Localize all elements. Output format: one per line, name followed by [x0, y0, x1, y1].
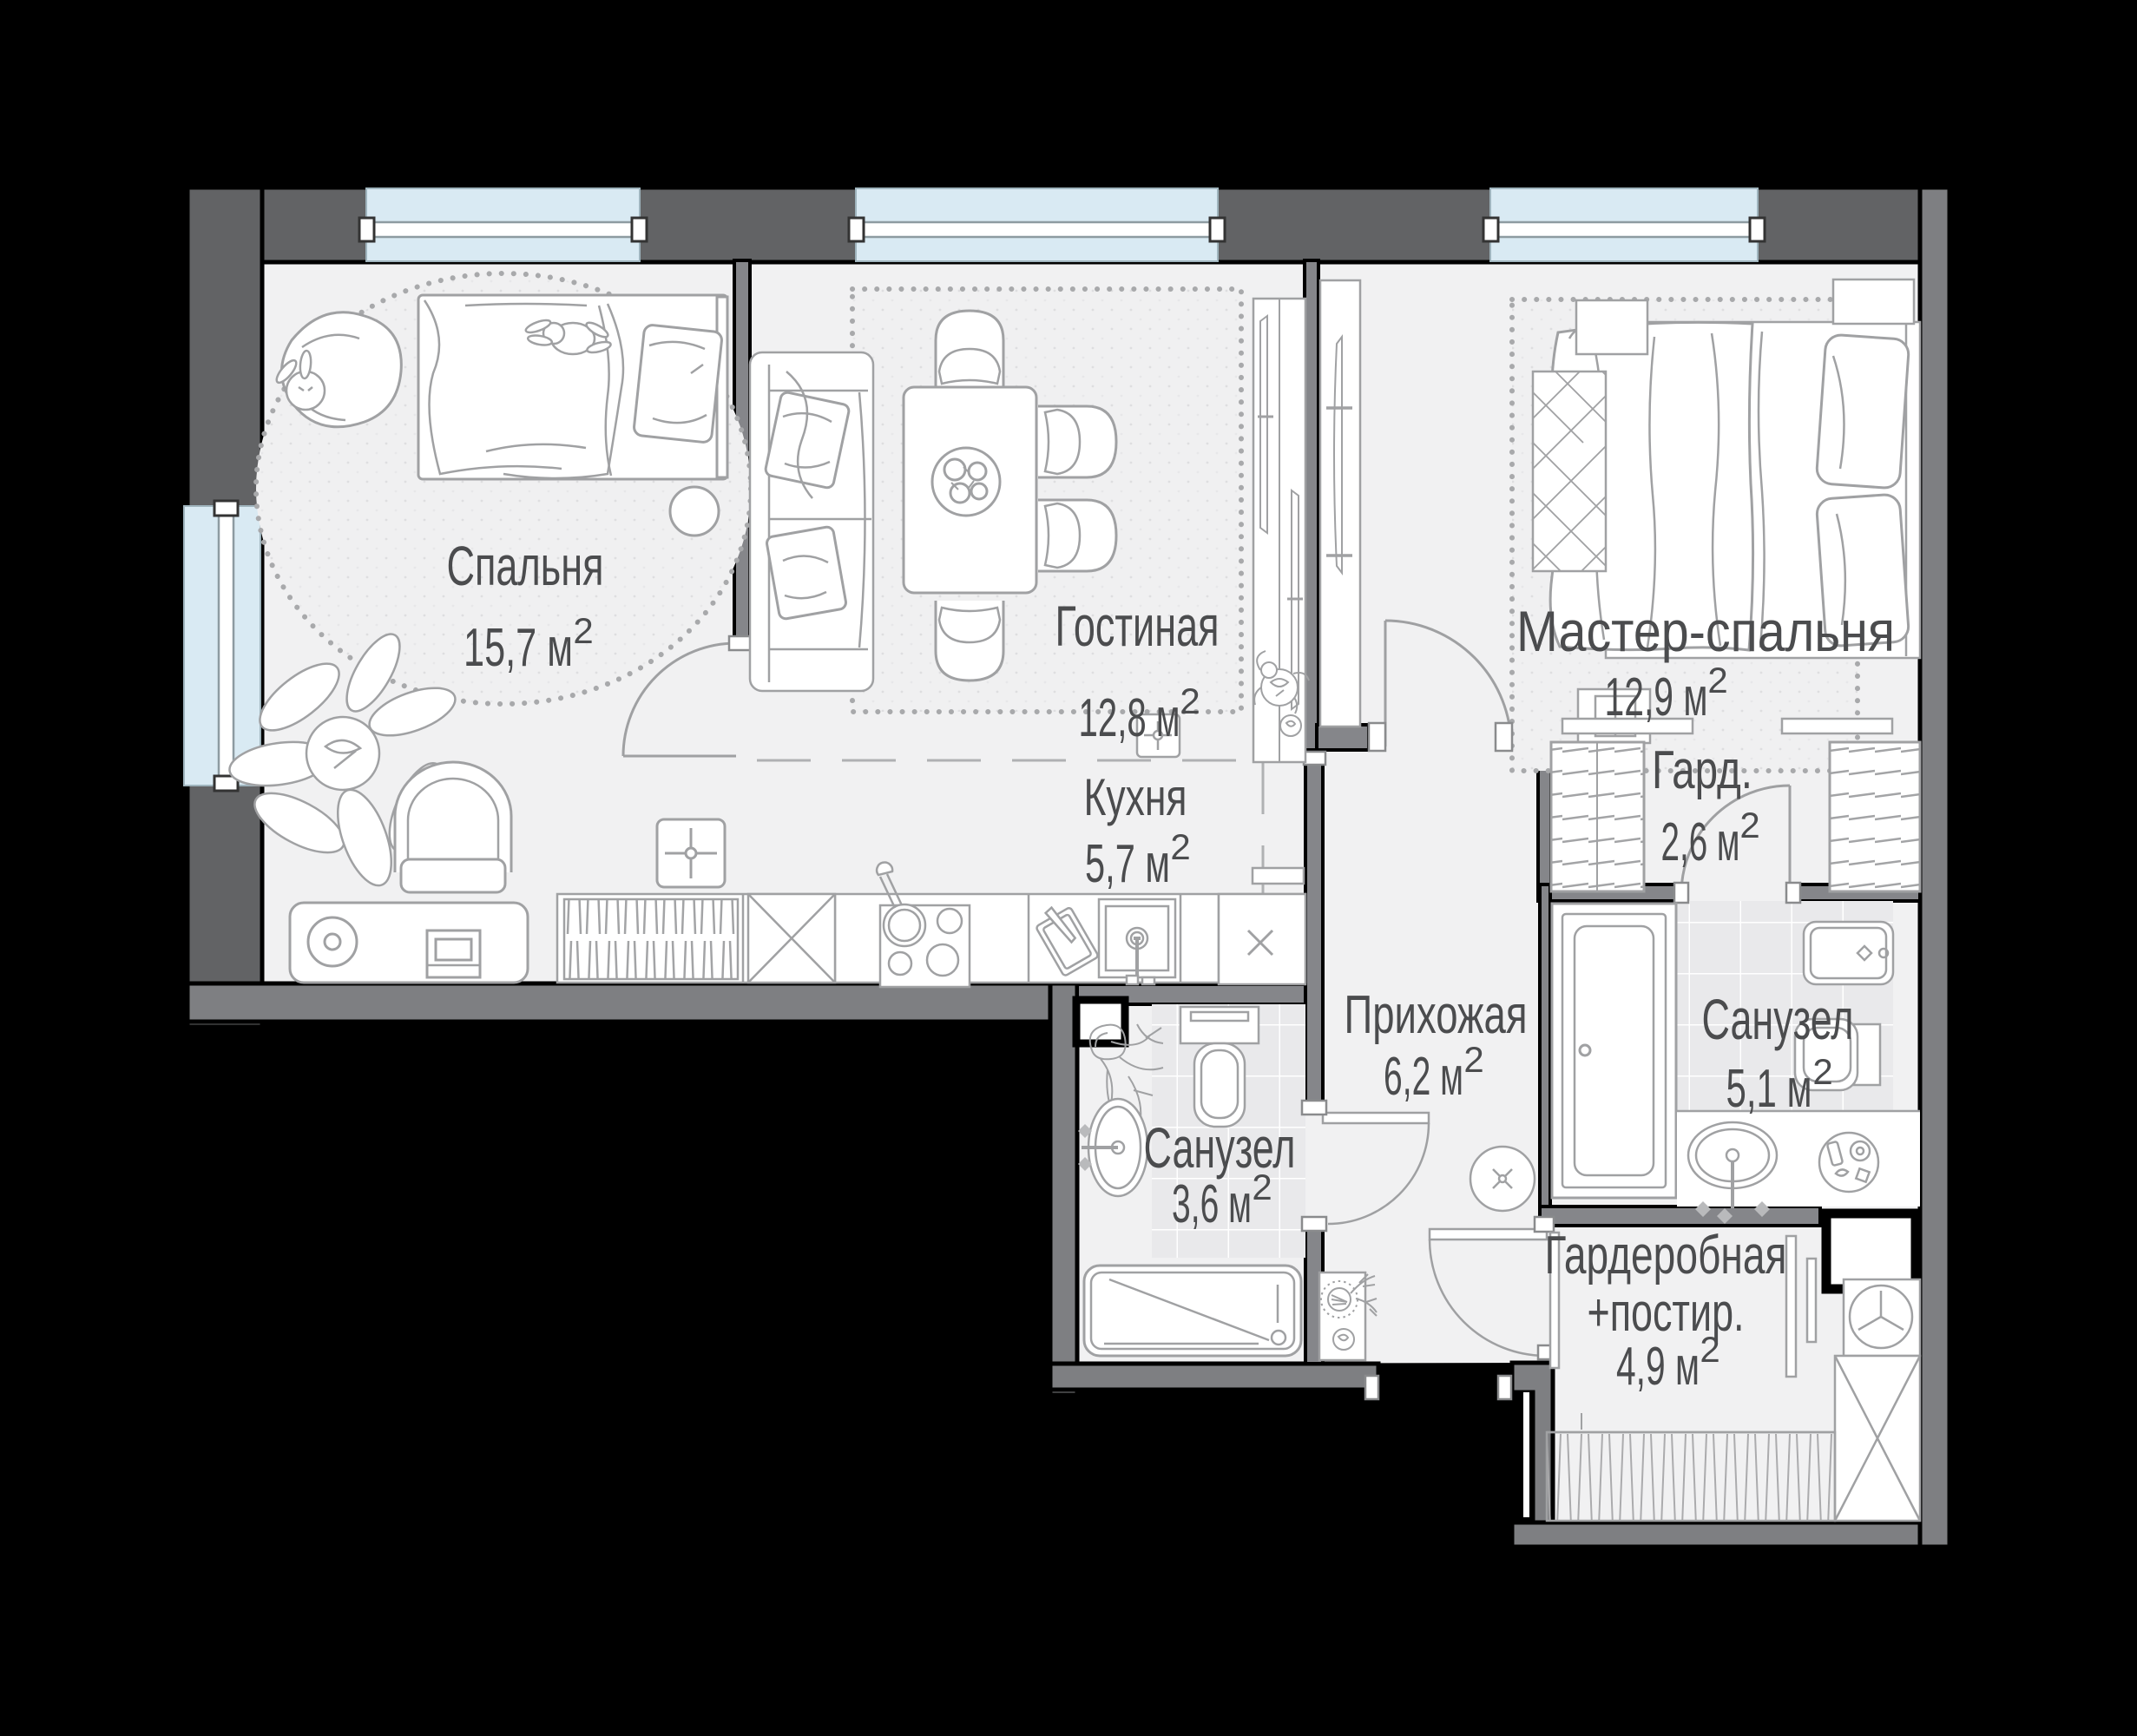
- svg-text:2: 2: [1707, 660, 1727, 700]
- svg-text:Санузел: Санузел: [1144, 1115, 1296, 1180]
- svg-text:12,9 м: 12,9 м: [1605, 667, 1708, 727]
- svg-text:Гард.: Гард.: [1652, 740, 1752, 800]
- svg-text:2: 2: [1700, 1329, 1719, 1370]
- svg-text:2,6 м: 2,6 м: [1661, 812, 1740, 872]
- svg-text:5,7 м: 5,7 м: [1085, 834, 1170, 894]
- svg-text:2: 2: [1739, 805, 1759, 845]
- svg-text:5,1 м: 5,1 м: [1726, 1059, 1812, 1119]
- svg-text:2: 2: [1463, 1039, 1483, 1080]
- svg-text:2: 2: [1252, 1167, 1272, 1207]
- svg-text:Гостиная: Гостиная: [1055, 594, 1220, 658]
- svg-text:2: 2: [1812, 1051, 1832, 1092]
- svg-text:Кухня: Кухня: [1084, 768, 1187, 826]
- svg-text:2: 2: [573, 610, 593, 651]
- svg-text:+постир.: +постир.: [1588, 1283, 1745, 1343]
- svg-text:Прихожая: Прихожая: [1345, 985, 1528, 1045]
- svg-text:2: 2: [1180, 681, 1200, 721]
- svg-text:3,6 м: 3,6 м: [1172, 1174, 1252, 1234]
- svg-text:4,9 м: 4,9 м: [1616, 1337, 1700, 1397]
- svg-text:12,8 м: 12,8 м: [1079, 688, 1180, 748]
- svg-text:2: 2: [1170, 826, 1190, 867]
- svg-text:Санузел: Санузел: [1702, 987, 1854, 1051]
- svg-text:Мастер-спальня: Мастер-спальня: [1516, 599, 1895, 663]
- svg-text:Гардеробная: Гардеробная: [1545, 1226, 1787, 1286]
- svg-text:6,2 м: 6,2 м: [1384, 1047, 1463, 1107]
- svg-text:Спальня: Спальня: [447, 535, 604, 597]
- svg-text:15,7 м: 15,7 м: [464, 618, 573, 678]
